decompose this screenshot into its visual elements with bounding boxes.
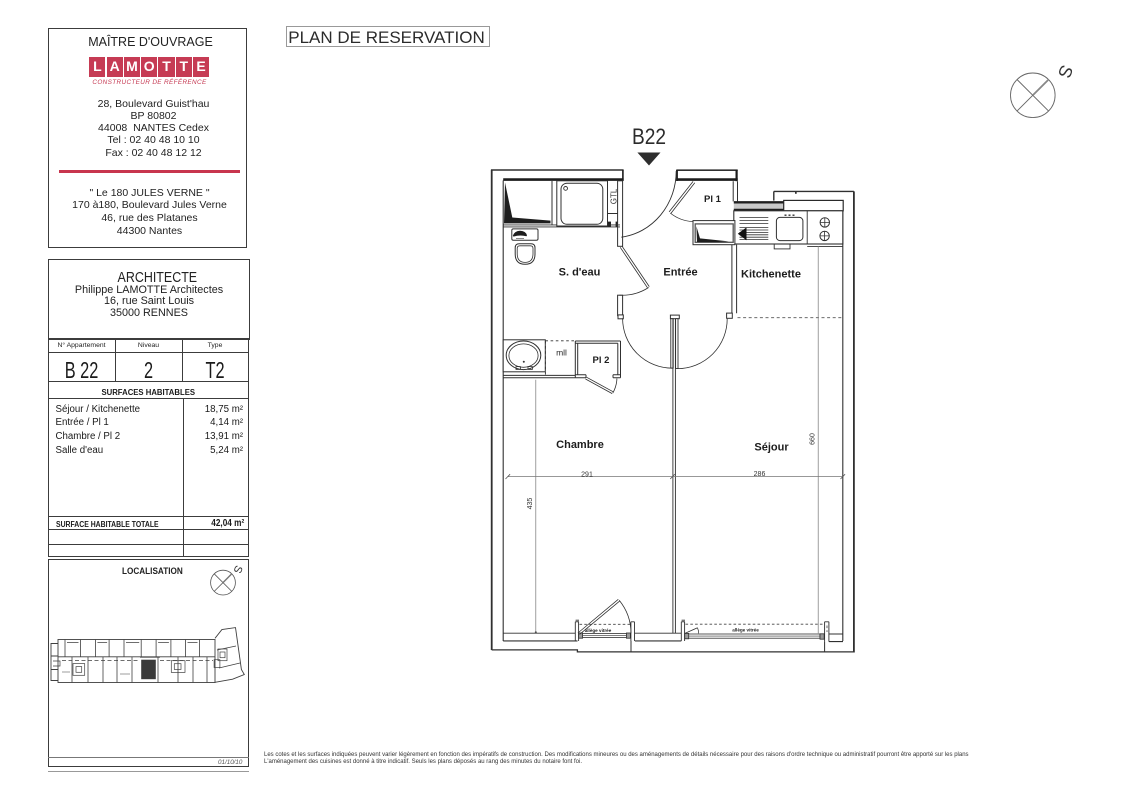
svg-text:286: 286 [754,471,766,478]
svg-text:435: 435 [527,498,534,510]
svg-text:291: 291 [581,471,593,478]
svg-text:allège vitrée: allège vitrée [585,628,612,633]
svg-text:Chambre: Chambre [556,439,604,451]
svg-text:S: S [1054,62,1077,81]
svg-text:S: S [231,563,245,574]
svg-text:Entrée: Entrée [663,267,697,279]
svg-text:Pl 1: Pl 1 [704,194,722,205]
svg-text:660: 660 [810,433,817,445]
svg-text:allège vitrée: allège vitrée [732,628,759,633]
svg-text:B22: B22 [632,125,666,150]
svg-text:mll: mll [556,348,567,358]
svg-text:S. d'eau: S. d'eau [559,267,601,279]
svg-text:Séjour: Séjour [754,442,789,454]
svg-text:Kitchenette: Kitchenette [741,269,801,281]
svg-text:Pl 2: Pl 2 [593,355,610,366]
